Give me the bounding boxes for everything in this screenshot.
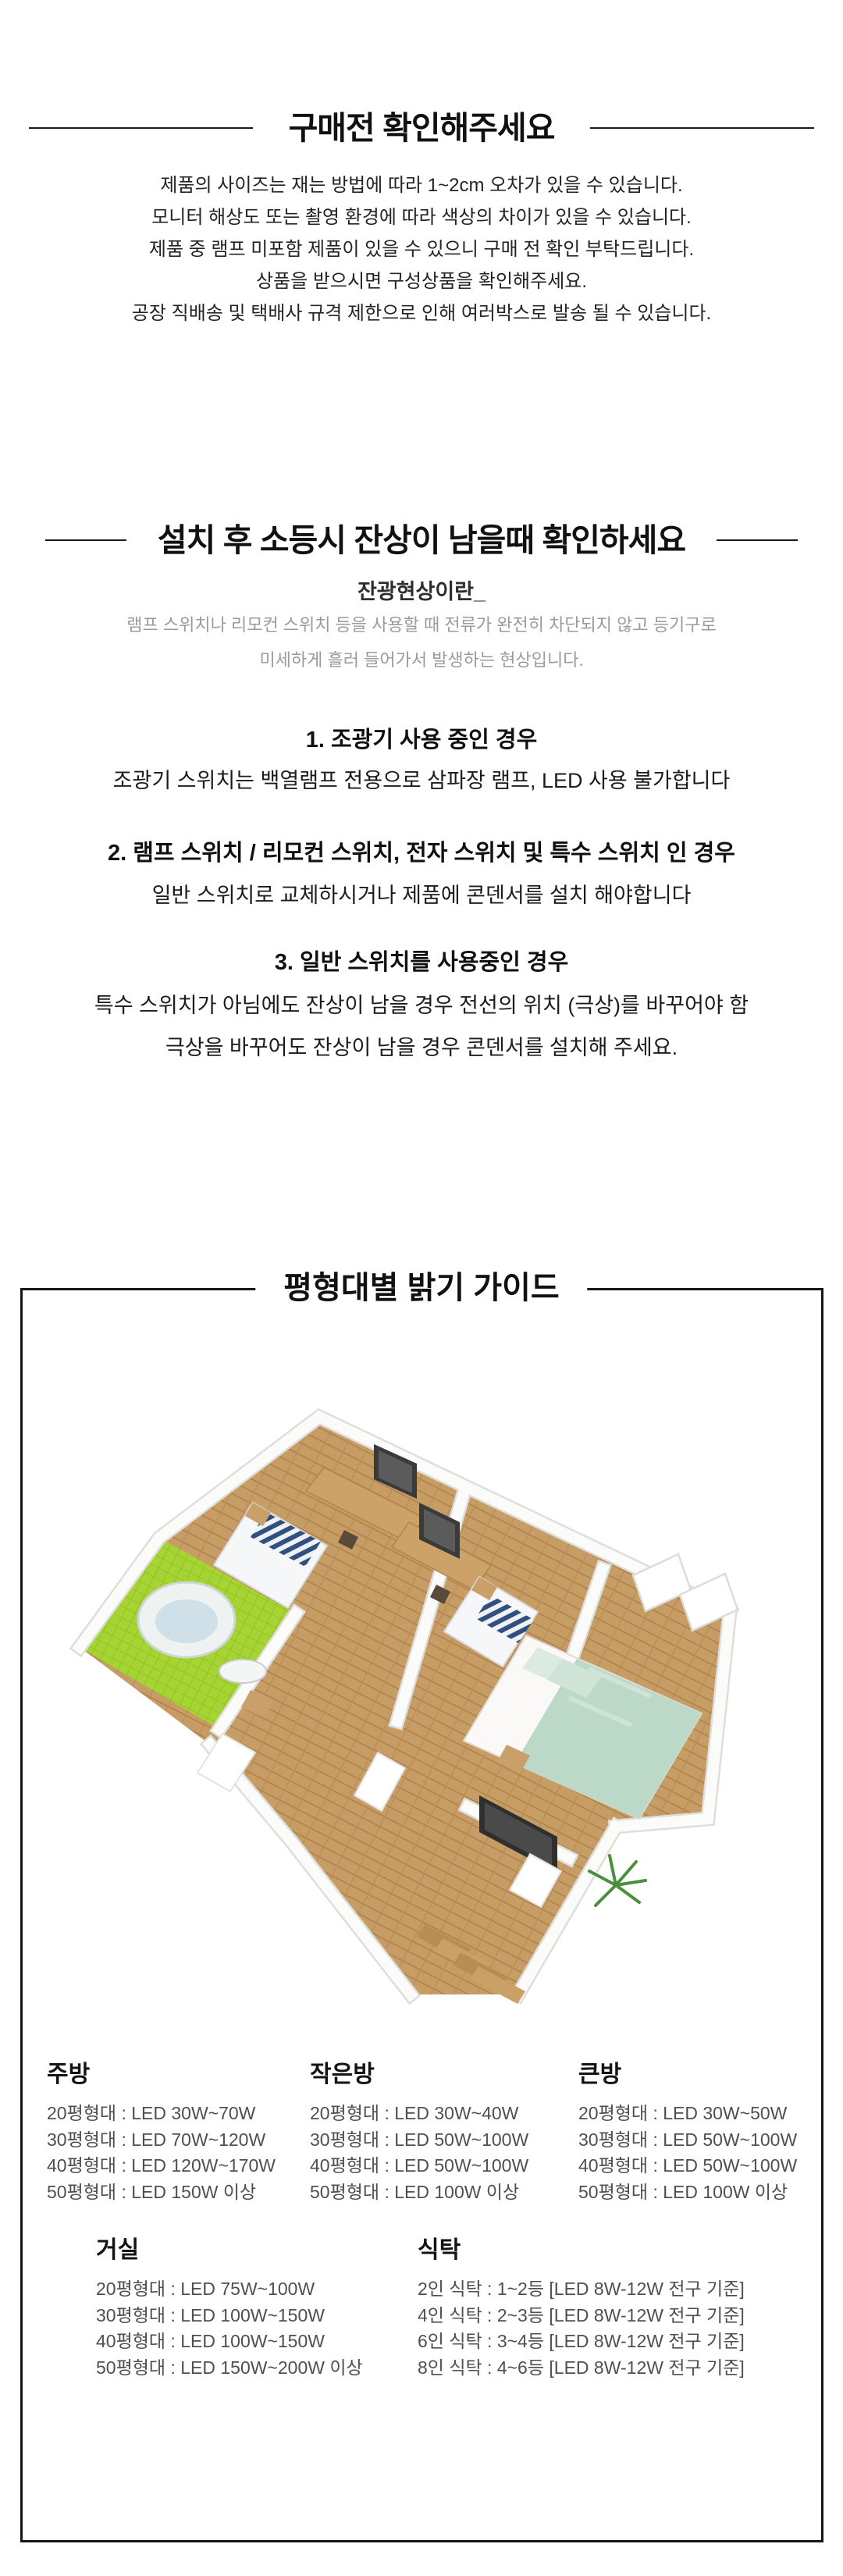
case-2-heading: 2. 램프 스위치 / 리모컨 스위치, 전자 스위치 및 특수 스위치 인 경… bbox=[0, 838, 843, 869]
notice-line: 모니터 해상도 또는 촬영 환경에 따라 색상의 차이가 있을 수 있습니다. bbox=[0, 201, 843, 233]
guide-section-title: 평형대별 밝기 가이드 bbox=[255, 1265, 587, 1311]
room-spec-line: 40평형대 : LED 50W~100W bbox=[578, 2153, 797, 2179]
room-spec-line: 6인 식탁 : 3~4등 [LED 8W-12W 전구 기준] bbox=[418, 2329, 745, 2355]
room-spec-line: 40평형대 : LED 50W~100W bbox=[310, 2153, 528, 2179]
notice-line: 공장 직배송 및 택배사 규격 제한으로 인해 여러박스로 발송 될 수 있습니… bbox=[0, 297, 843, 329]
room-spec-line: 30평형대 : LED 100W~150W bbox=[96, 2303, 363, 2329]
room-spec-line: 50평형대 : LED 100W 이상 bbox=[578, 2179, 797, 2206]
room-column-living-room: 거실 20평형대 : LED 75W~100W 30평형대 : LED 100W… bbox=[96, 2236, 363, 2381]
title-rule-right bbox=[590, 127, 814, 129]
room-spec-line: 50평형대 : LED 150W 이상 bbox=[47, 2179, 276, 2206]
room-spec-line: 30평형대 : LED 70W~120W bbox=[47, 2127, 276, 2154]
room-spec-line: 40평형대 : LED 120W~170W bbox=[47, 2153, 276, 2179]
room-spec-line: 20평형대 : LED 30W~40W bbox=[310, 2101, 528, 2127]
room-column-kitchen: 주방 20평형대 : LED 30W~70W 30평형대 : LED 70W~1… bbox=[47, 2060, 276, 2205]
case-body-line: 극상을 바꾸어도 잔상이 남을 경우 콘덴서를 설치해 주세요. bbox=[0, 1026, 843, 1069]
case-1-body: 조광기 스위치는 백열램프 전용으로 삼파장 램프, LED 사용 불가합니다 bbox=[0, 766, 843, 795]
room-spec-line: 20평형대 : LED 30W~70W bbox=[47, 2101, 276, 2127]
notice-text-block: 제품의 사이즈는 재는 방법에 따라 1~2cm 오차가 있을 수 있습니다. … bbox=[0, 169, 843, 329]
room-spec-line: 30평형대 : LED 50W~100W bbox=[578, 2127, 797, 2154]
room-spec-line: 20평형대 : LED 30W~50W bbox=[578, 2101, 797, 2127]
brightness-guide-box: 주방 20평형대 : LED 30W~70W 30평형대 : LED 70W~1… bbox=[20, 1288, 823, 2542]
room-column-small-room: 작은방 20평형대 : LED 30W~40W 30평형대 : LED 50W~… bbox=[310, 2060, 528, 2205]
room-spec-line: 50평형대 : LED 150W~200W 이상 bbox=[96, 2355, 363, 2382]
room-name: 거실 bbox=[96, 2236, 363, 2265]
title-rule-left bbox=[45, 539, 126, 541]
afterglow-subtitle: 잔광현상이란_ bbox=[0, 578, 843, 606]
afterglow-section-title: 설치 후 소등시 잔상이 남을때 확인하세요 bbox=[158, 518, 685, 562]
afterglow-description: 램프 스위치나 리모컨 스위치 등을 사용할 때 전류가 완전히 차단되지 않고… bbox=[0, 607, 843, 678]
case-body-line: 일반 스위치로 교체하시거나 제품에 콘덴서를 설치 해야합니다 bbox=[0, 881, 843, 910]
room-spec-line: 40평형대 : LED 100W~150W bbox=[96, 2329, 363, 2355]
room-spec-line: 8인 식탁 : 4~6등 [LED 8W-12W 전구 기준] bbox=[418, 2355, 745, 2382]
room-spec-line: 4인 식탁 : 2~3등 [LED 8W-12W 전구 기준] bbox=[418, 2303, 745, 2329]
room-column-dining-table: 식탁 2인 식탁 : 1~2등 [LED 8W-12W 전구 기준] 4인 식탁… bbox=[418, 2236, 745, 2381]
case-body-line: 특수 스위치가 아님에도 잔상이 남을 경우 전선의 위치 (극상)를 바꾸어야… bbox=[0, 984, 843, 1026]
room-spec-line: 20평형대 : LED 75W~100W bbox=[96, 2276, 363, 2303]
case-body-line: 조광기 스위치는 백열램프 전용으로 삼파장 램프, LED 사용 불가합니다 bbox=[0, 766, 843, 795]
room-spec-line: 50평형대 : LED 100W 이상 bbox=[310, 2179, 528, 2206]
notice-section-title: 구매전 확인해주세요 bbox=[289, 106, 555, 150]
room-name: 주방 bbox=[47, 2060, 276, 2090]
room-name: 작은방 bbox=[310, 2060, 528, 2090]
room-column-big-room: 큰방 20평형대 : LED 30W~50W 30평형대 : LED 50W~1… bbox=[578, 2060, 797, 2205]
case-3-body: 특수 스위치가 아님에도 잔상이 남을 경우 전선의 위치 (극상)를 바꾸어야… bbox=[0, 984, 843, 1069]
room-name: 식탁 bbox=[418, 2236, 745, 2265]
case-2-body: 일반 스위치로 교체하시거나 제품에 콘덴서를 설치 해야합니다 bbox=[0, 881, 843, 910]
case-1-heading: 1. 조광기 사용 중인 경우 bbox=[0, 724, 843, 756]
product-info-page: 구매전 확인해주세요 제품의 사이즈는 재는 방법에 따라 1~2cm 오차가 … bbox=[0, 0, 843, 2576]
notice-section-header: 구매전 확인해주세요 bbox=[0, 106, 843, 150]
room-spec-line: 2인 식탁 : 1~2등 [LED 8W-12W 전구 기준] bbox=[418, 2276, 745, 2303]
notice-line: 제품 중 램프 미포함 제품이 있을 수 있으니 구매 전 확인 부탁드립니다. bbox=[0, 233, 843, 265]
room-name: 큰방 bbox=[578, 2060, 797, 2090]
notice-line: 상품을 받으시면 구성상품을 확인해주세요. bbox=[0, 265, 843, 297]
afterglow-section-header: 설치 후 소등시 잔상이 남을때 확인하세요 bbox=[0, 518, 843, 562]
bathtub bbox=[138, 1582, 235, 1657]
notice-line: 제품의 사이즈는 재는 방법에 따라 1~2cm 오차가 있을 수 있습니다. bbox=[0, 169, 843, 201]
afterglow-description-line: 미세하게 흘러 들어가서 발생하는 현상입니다. bbox=[0, 642, 843, 678]
floor-plan-image bbox=[69, 1386, 780, 2018]
afterglow-description-line: 램프 스위치나 리모컨 스위치 등을 사용할 때 전류가 완전히 차단되지 않고… bbox=[0, 607, 843, 642]
title-rule-right bbox=[717, 539, 798, 541]
case-3-heading: 3. 일반 스위치를 사용중인 경우 bbox=[0, 947, 843, 978]
room-spec-line: 30평형대 : LED 50W~100W bbox=[310, 2127, 528, 2154]
title-rule-left bbox=[29, 127, 253, 129]
